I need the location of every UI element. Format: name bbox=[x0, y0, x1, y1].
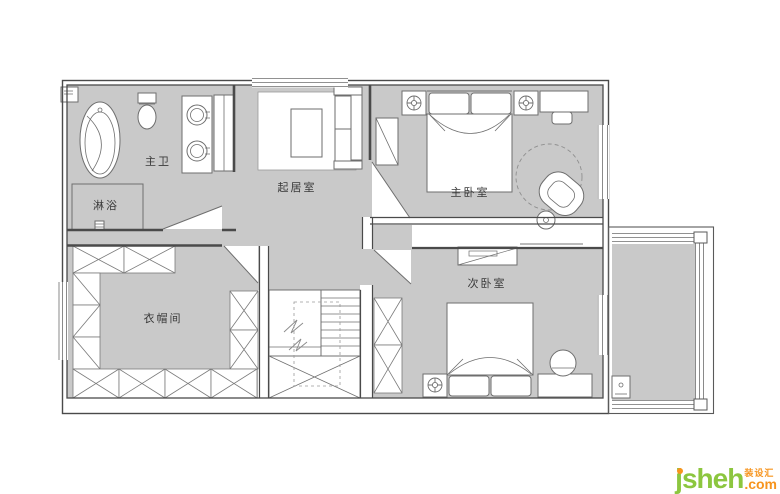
coffee-table-icon bbox=[291, 109, 322, 157]
stairs-icon bbox=[269, 290, 360, 398]
stool-icon bbox=[552, 112, 572, 124]
lamp-icon bbox=[407, 96, 421, 110]
label-closet: 衣帽间 bbox=[144, 311, 183, 325]
sofa-icon bbox=[334, 87, 362, 169]
bathtub-icon bbox=[80, 102, 120, 178]
label-shower: 淋浴 bbox=[93, 199, 119, 212]
floor-drain-icon bbox=[95, 221, 104, 230]
brand-text: jsheh bbox=[675, 467, 743, 491]
brand-tld: .com bbox=[744, 478, 777, 491]
desk-chair-icon bbox=[550, 350, 576, 376]
dresser-icon bbox=[540, 91, 588, 112]
watermark-logo[interactable]: jsheh 装设汇 .com bbox=[675, 467, 777, 491]
living-room-furniture bbox=[258, 87, 362, 170]
sink-counter-icon bbox=[182, 96, 212, 173]
label-master-bedroom: 主卧室 bbox=[451, 185, 490, 199]
floorplan-drawing: 主卫 淋浴 起居室 主卧室 衣帽间 次卧室 bbox=[0, 0, 780, 492]
label-master-bath: 主卫 bbox=[145, 155, 171, 168]
lamp-icon bbox=[519, 96, 533, 110]
tv-cabinet-icon bbox=[458, 247, 517, 265]
toilet-icon bbox=[138, 93, 156, 129]
double-bed-icon bbox=[427, 91, 512, 192]
second-bedroom-window-icon bbox=[597, 295, 609, 355]
lamp-icon bbox=[428, 378, 442, 392]
closet-window-icon bbox=[58, 282, 68, 360]
column-icon bbox=[61, 87, 78, 102]
master-bedroom-window-icon bbox=[597, 125, 609, 199]
floorplan-page: { "rooms": { "master_bath": "主卫", "showe… bbox=[0, 0, 780, 492]
label-living-room: 起居室 bbox=[278, 180, 317, 194]
side-table-icon bbox=[537, 211, 555, 229]
floor-drain-icon bbox=[612, 376, 630, 398]
desk-icon bbox=[538, 374, 592, 397]
label-second-bedroom: 次卧室 bbox=[468, 276, 507, 290]
living-window-icon bbox=[252, 78, 348, 88]
